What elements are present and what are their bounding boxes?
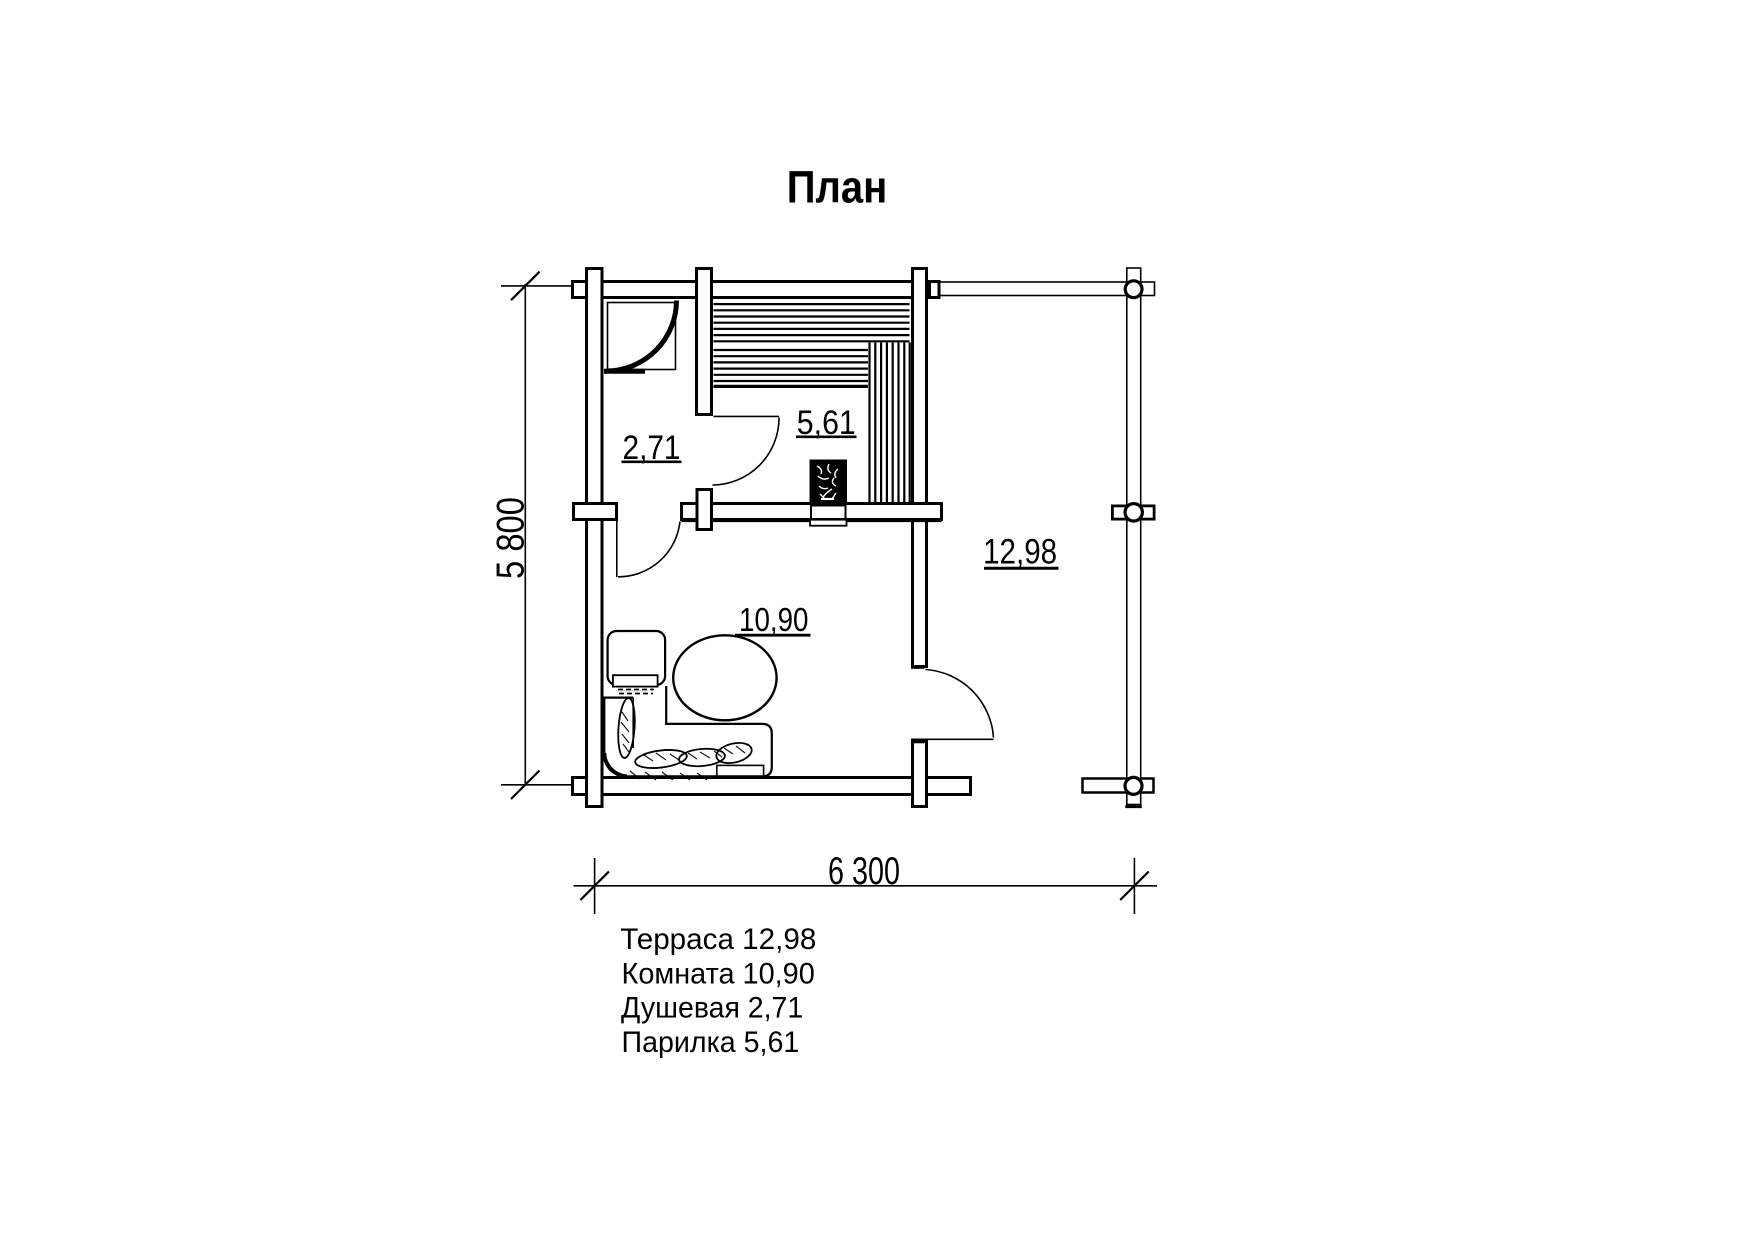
svg-text:6 300: 6 300 xyxy=(828,850,900,893)
svg-text:План: План xyxy=(787,161,888,212)
svg-text:Комната 10,90: Комната 10,90 xyxy=(622,957,815,990)
svg-text:12,98: 12,98 xyxy=(983,532,1057,571)
svg-text:5 800: 5 800 xyxy=(490,497,533,579)
svg-text:Терраса 12,98: Терраса 12,98 xyxy=(620,923,816,956)
svg-text:Парилка 5,61: Парилка 5,61 xyxy=(622,1026,800,1059)
svg-text:10,90: 10,90 xyxy=(739,601,809,638)
svg-text:Душевая 2,71: Душевая 2,71 xyxy=(621,992,803,1025)
